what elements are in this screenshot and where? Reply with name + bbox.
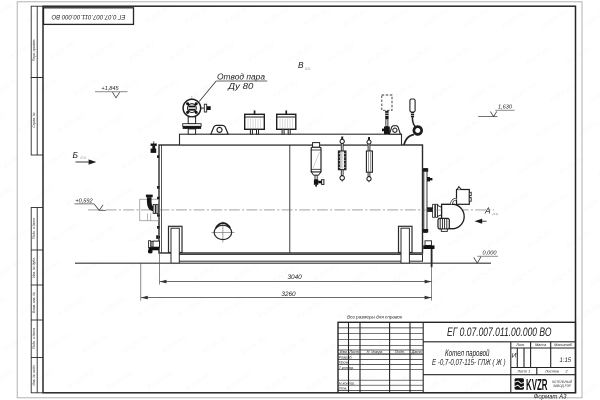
svg-text:Лист: Лист xyxy=(348,350,359,354)
svg-text:Изм: Изм xyxy=(340,350,347,354)
svg-text:+1,845: +1,845 xyxy=(101,86,119,92)
svg-text:Т.контр.: Т.контр. xyxy=(339,366,354,370)
svg-text:Все размеры для справок: Все размеры для справок xyxy=(347,315,403,320)
svg-text:Н. докум.: Н. докум. xyxy=(367,350,383,354)
svg-text:Н.контр.: Н.контр. xyxy=(339,382,355,386)
svg-text:Инв. № дубл.: Инв. № дубл. xyxy=(32,257,36,278)
svg-text:В: В xyxy=(298,60,304,70)
svg-text:Справ. №: Справ. № xyxy=(32,112,36,128)
svg-text:3040: 3040 xyxy=(287,274,302,281)
svg-text:Котел паровой: Котел паровой xyxy=(445,348,490,358)
svg-text:(2:1): (2:1) xyxy=(305,67,311,71)
svg-text:3260: 3260 xyxy=(281,291,296,298)
svg-text:ЕГ 0.07.007.011.00.000 ВО: ЕГ 0.07.007.011.00.000 ВО xyxy=(447,325,552,339)
svg-text:И: И xyxy=(512,352,517,359)
svg-text:КОТЕЛЬНЫЙ: КОТЕЛЬНЫЙ xyxy=(552,380,573,384)
svg-text:Взам. инв. №: Взам. инв. № xyxy=(32,292,36,313)
svg-text:ЗАВОД РЭР: ЗАВОД РЭР xyxy=(553,384,572,388)
svg-text:Е -0,7-0,07-115- ГЛЖ ( Ж ): Е -0,7-0,07-115- ГЛЖ ( Ж ) xyxy=(432,358,506,367)
svg-text:Ду 80: Ду 80 xyxy=(227,82,254,91)
svg-text:Перв. примен.: Перв. примен. xyxy=(32,39,36,62)
svg-text:0,000: 0,000 xyxy=(483,250,498,256)
svg-text:(2:1): (2:1) xyxy=(492,212,498,216)
svg-text:Разраб.: Разраб. xyxy=(339,356,353,360)
svg-text:Инв. № подл.: Инв. № подл. xyxy=(32,364,36,385)
svg-text:Масса: Масса xyxy=(535,343,546,347)
svg-text:Масштаб: Масштаб xyxy=(554,343,573,347)
svg-text:KVZR: KVZR xyxy=(526,377,548,394)
svg-text:Подп. и дата: Подп. и дата xyxy=(32,328,36,349)
svg-text:1,630: 1,630 xyxy=(498,105,513,111)
svg-text:А: А xyxy=(484,206,491,216)
svg-text:Листов: Листов xyxy=(544,370,559,374)
svg-text:+0,592: +0,592 xyxy=(75,198,93,204)
svg-text:ЕГ 0.07.007.011.00.000 ВО: ЕГ 0.07.007.011.00.000 ВО xyxy=(51,13,125,19)
svg-text:1:15: 1:15 xyxy=(559,358,571,364)
svg-text:Лит.: Лит. xyxy=(515,343,525,347)
svg-text:Формат А3: Формат А3 xyxy=(534,394,567,400)
svg-text:Дата: Дата xyxy=(411,350,422,354)
svg-text:Утв.: Утв. xyxy=(339,387,348,391)
svg-text:Б: Б xyxy=(73,150,79,160)
svg-text:Лист 1: Лист 1 xyxy=(516,370,530,374)
svg-text:(2:1): (2:1) xyxy=(80,156,86,160)
svg-text:Пров.: Пров. xyxy=(339,361,349,365)
svg-text:Отвод пара: Отвод пара xyxy=(217,73,266,82)
svg-text:Подп. и дата: Подп. и дата xyxy=(32,218,36,239)
svg-text:Подп.: Подп. xyxy=(395,350,405,354)
